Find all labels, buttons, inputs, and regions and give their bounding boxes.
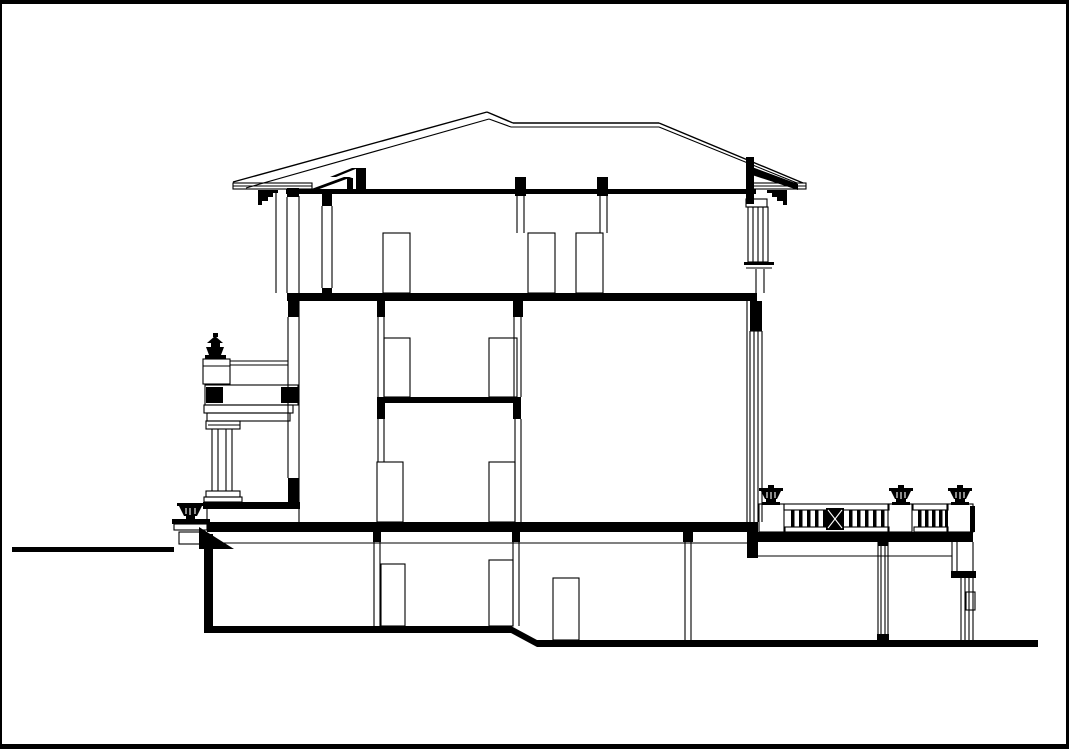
walls: [276, 188, 762, 532]
windows: [744, 207, 774, 522]
drawing-sheet: [0, 0, 1069, 749]
section-drawing: [0, 0, 1069, 749]
floor-slabs: [203, 189, 973, 542]
balustrade: [759, 504, 975, 532]
porch-colonnade: [203, 333, 298, 522]
page-frame: [0, 0, 1069, 749]
ground-lines: [12, 547, 174, 552]
terrace: [758, 542, 976, 640]
basement: [204, 532, 1038, 647]
terrace-urns: [759, 485, 972, 505]
